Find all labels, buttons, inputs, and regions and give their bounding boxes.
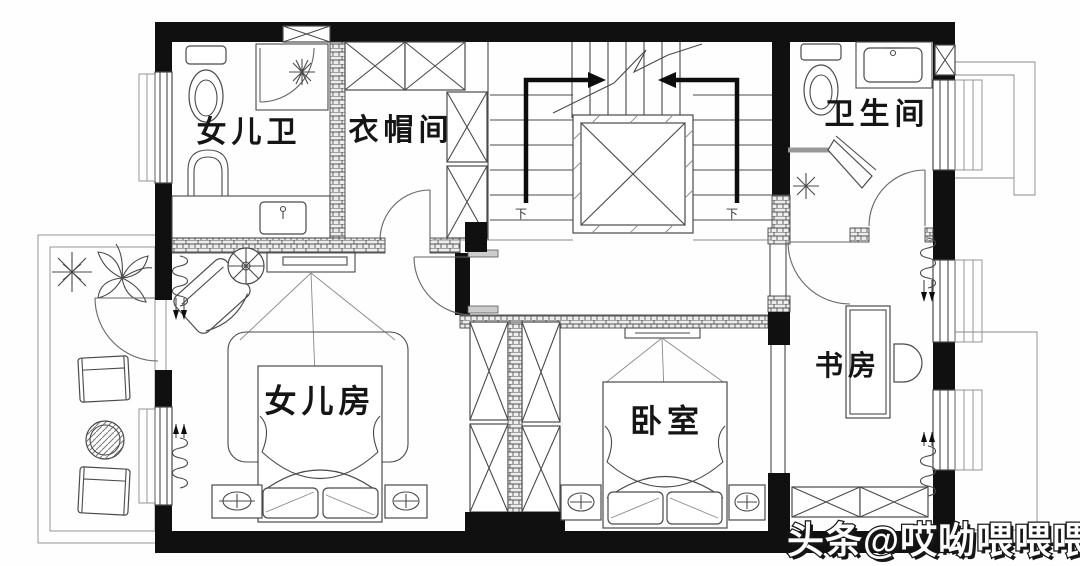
stair-down-label: 下 — [515, 207, 527, 221]
label-study: 书房 — [815, 349, 881, 382]
watermark: 头条@哎呦喂喂喂韦 头条@哎呦喂喂喂韦 — [787, 520, 1080, 564]
watermark-text: 头条@哎呦喂喂喂韦 — [787, 520, 1080, 561]
label-cloakroom: 衣帽间 — [349, 114, 454, 147]
door-frame — [468, 306, 498, 313]
balcony-table — [86, 421, 124, 459]
cabinet-symbol — [792, 487, 928, 517]
column-box — [283, 26, 330, 42]
floor-plan-drawing: 下 下 — [0, 0, 1080, 566]
label-bathroom: 卫生间 — [825, 98, 930, 131]
wardrobe-symbol — [465, 322, 565, 531]
toilet-symbol — [186, 46, 226, 122]
nightstand-symbol — [212, 485, 262, 518]
label-daughter-bath: 女儿卫 — [197, 115, 302, 149]
floor-lamp-symbol — [228, 248, 264, 284]
nightstand-symbol — [729, 485, 765, 520]
label-daughter-room: 女儿房 — [264, 383, 375, 419]
balcony-chair — [78, 467, 130, 516]
label-bedroom: 卧室 — [630, 403, 704, 439]
floor-plan: 下 下 — [0, 0, 1080, 566]
nightstand-symbol — [561, 485, 601, 520]
stair-down-label: 下 — [726, 207, 738, 221]
stair-void — [573, 115, 693, 233]
column-box — [935, 45, 955, 75]
balcony-chair — [78, 356, 130, 403]
nightstand-symbol — [385, 485, 427, 518]
